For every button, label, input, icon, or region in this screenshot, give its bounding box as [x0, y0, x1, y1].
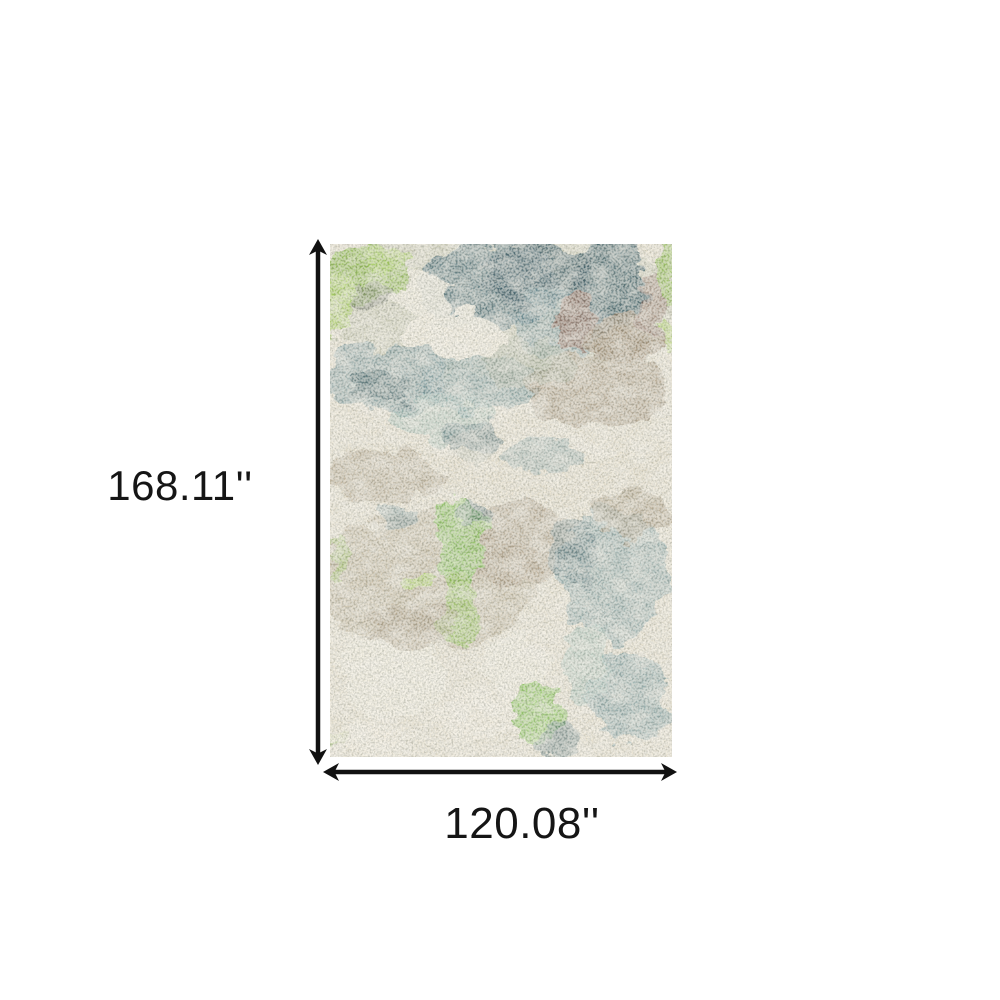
- width-dimension-arrow: [322, 760, 678, 784]
- height-dimension-arrow: [306, 238, 330, 766]
- rug-image: [330, 244, 672, 757]
- width-dimension-label: 120.08'': [397, 799, 647, 849]
- height-dimension-label: 168.11'': [60, 462, 300, 510]
- rug-light-speckle: [330, 244, 672, 757]
- rug-texture-svg: [330, 244, 672, 757]
- dimension-diagram: 168.11'' 120.08'': [0, 0, 1000, 1000]
